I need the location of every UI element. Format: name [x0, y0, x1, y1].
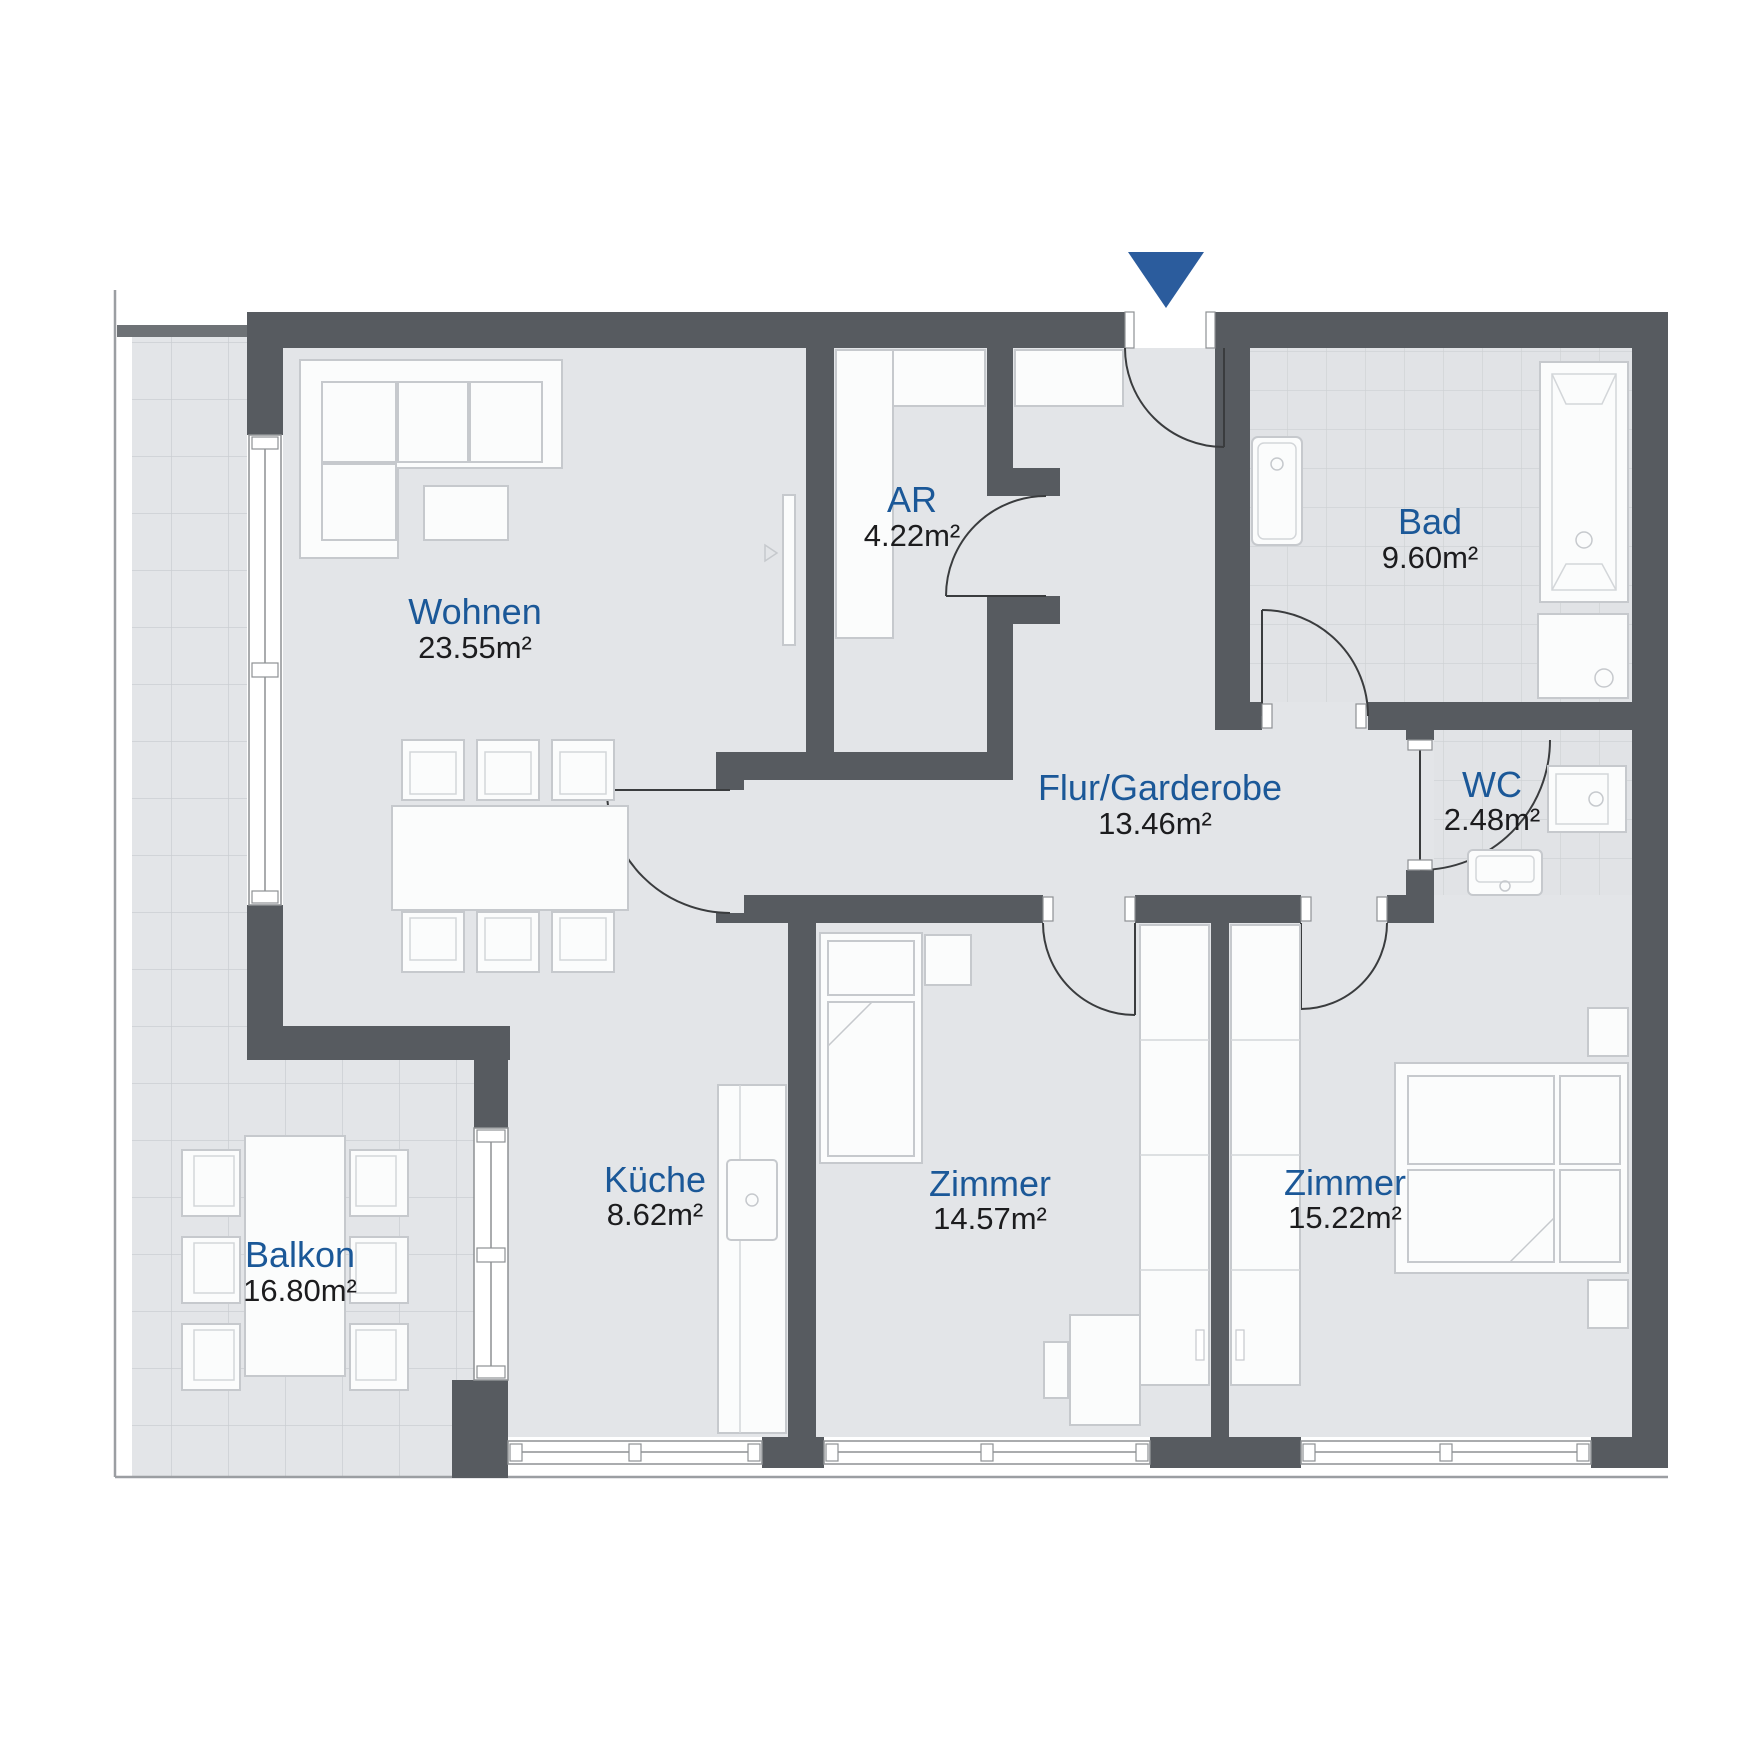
desk — [1070, 1315, 1140, 1425]
wardrobe-zimmer2 — [1231, 925, 1300, 1385]
room-area-zimmer2: 15.22m² — [1288, 1200, 1402, 1235]
pillow — [1560, 1076, 1620, 1164]
wall-bottom-segment — [762, 1437, 824, 1468]
wall-bottom-segment — [1591, 1437, 1668, 1468]
sofa-cushion — [322, 382, 396, 462]
coffee-table — [424, 486, 508, 540]
window-wohnen-balcony — [249, 435, 281, 905]
entrance-wardrobe — [1015, 350, 1123, 406]
wardrobe-zimmer1 — [1140, 925, 1209, 1385]
room-area-flur: 13.46m² — [1098, 806, 1212, 841]
chair — [402, 912, 464, 972]
room-name-zimmer2: Zimmer — [1284, 1162, 1406, 1203]
triangle-down-icon — [1128, 252, 1204, 308]
mattress — [1408, 1170, 1554, 1262]
nightstand — [1588, 1008, 1628, 1056]
room-name-ar: AR — [887, 479, 937, 520]
room-name-bad: Bad — [1398, 501, 1462, 542]
pillow — [828, 941, 914, 995]
window-kueche-balcony — [474, 1128, 508, 1380]
room-name-wohnen: Wohnen — [408, 591, 541, 632]
floor-plan-drawing: Wohnen 23.55m² AR 4.22m² Bad 9.60m² Flur… — [0, 0, 1764, 1764]
mattress — [828, 1002, 914, 1156]
pillow — [1560, 1170, 1620, 1262]
wall-kueche-zimmer1 — [788, 923, 816, 1437]
chair — [552, 912, 614, 972]
room-area-wohnen: 23.55m² — [418, 630, 532, 665]
chair — [477, 912, 539, 972]
room-area-bad: 9.60m² — [1382, 540, 1478, 575]
wall-left-lower — [247, 905, 283, 1026]
room-area-ar: 4.22m² — [864, 518, 960, 553]
kitchen-sink — [727, 1160, 777, 1240]
wall-ar-bottom — [716, 752, 1013, 780]
sofa-cushion — [470, 382, 542, 462]
kitchen-counter — [718, 1085, 786, 1433]
wall-ar-east-upper — [987, 348, 1013, 468]
wall-wc-west-upper — [1406, 730, 1434, 740]
washing-machine — [1538, 614, 1628, 698]
wall-wc-west-lower — [1406, 870, 1434, 923]
wall-bad-wc-divider-right — [1368, 702, 1632, 730]
tv — [783, 495, 795, 645]
room-area-balkon: 16.80m² — [243, 1273, 357, 1308]
room-name-zimmer1: Zimmer — [929, 1163, 1051, 1204]
wall-step-horizontal — [247, 1026, 510, 1060]
zimmer2-bed — [1395, 1063, 1628, 1273]
wall-flur-zimmer-middle — [1135, 895, 1301, 923]
entrance-frame-left — [1125, 312, 1134, 348]
window-zimmer1-south — [824, 1441, 1150, 1464]
wall-zimmer-divider — [1211, 923, 1229, 1437]
wall-bottom-segment — [455, 1437, 508, 1468]
bathtub — [1540, 362, 1628, 602]
wall-top-left — [247, 312, 1125, 348]
room-name-balkon: Balkon — [245, 1234, 355, 1275]
room-area-wc: 2.48m² — [1444, 802, 1540, 837]
wall-ar-east-lower — [987, 624, 1013, 752]
zimmer1-bed — [820, 933, 922, 1163]
sofa-cushion — [322, 464, 396, 540]
sofa-cushion — [398, 382, 468, 462]
room-name-wc: WC — [1462, 764, 1522, 805]
wardrobe-handle — [1196, 1330, 1204, 1360]
wall-wohnen-door-stub-bottom — [716, 913, 744, 923]
wall-bad-wc-divider-left — [1215, 702, 1262, 730]
wall-wohnen-door-stub-top — [716, 780, 744, 790]
dining-table — [392, 806, 628, 910]
wall-wohnen-ar — [806, 348, 834, 780]
ar-cabinet — [836, 350, 893, 638]
entrance-opening — [1125, 312, 1215, 348]
room-area-kueche: 8.62m² — [607, 1197, 703, 1232]
entrance — [1125, 252, 1215, 348]
wall-ar-door-stub-bottom — [987, 596, 1060, 624]
wall-top-right — [1215, 312, 1668, 348]
wc-sink — [1548, 766, 1626, 832]
entrance-frame-right — [1206, 312, 1215, 348]
toilet — [1468, 850, 1542, 895]
window-zimmer2-south — [1301, 1441, 1591, 1464]
wall-flur-zimmer1 — [744, 895, 1043, 923]
bad-sink — [1252, 437, 1302, 545]
chair — [402, 740, 464, 800]
wall-step-vertical — [474, 1060, 508, 1128]
wall-bottom-segment — [1150, 1437, 1301, 1468]
chair — [552, 740, 614, 800]
nightstand — [925, 935, 971, 985]
balcony-edge-top — [117, 325, 247, 337]
chair — [477, 740, 539, 800]
mattress — [1408, 1076, 1554, 1164]
wall-ar-door-stub-top — [987, 468, 1060, 496]
room-name-kueche: Küche — [604, 1159, 706, 1200]
wardrobe-handle — [1236, 1330, 1244, 1360]
floor-plan-page: Wohnen 23.55m² AR 4.22m² Bad 9.60m² Flur… — [0, 0, 1764, 1764]
wall-left-upper — [247, 348, 283, 435]
wall-bad-west — [1215, 348, 1250, 702]
desk-chair — [1044, 1342, 1068, 1398]
room-area-zimmer1: 14.57m² — [933, 1201, 1047, 1236]
room-name-flur: Flur/Garderobe — [1038, 767, 1282, 808]
nightstand — [1588, 1280, 1628, 1328]
wall-right — [1632, 348, 1668, 1468]
window-kueche-south — [508, 1441, 762, 1464]
